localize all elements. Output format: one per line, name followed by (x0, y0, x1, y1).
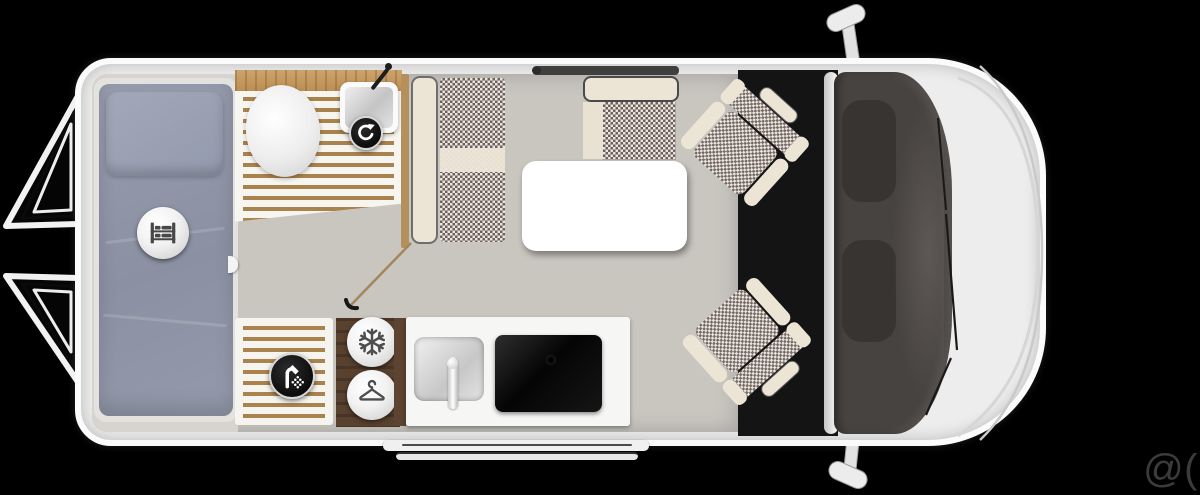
bench-backrest (411, 76, 438, 244)
furniture-wood-edge (401, 74, 409, 248)
travel-seat-bolster (583, 102, 603, 159)
bunk-bed-icon (137, 207, 189, 259)
bed-pillow (106, 92, 223, 176)
rear-door-bottom-icon (6, 276, 78, 382)
rear-door-top-icon (6, 96, 78, 226)
bathroom-faucet-knob (385, 63, 392, 70)
snowflake-icon (347, 317, 397, 367)
watermark-text: @( Bazos.cz (990, 445, 1198, 493)
sliding-door-rail (402, 444, 632, 446)
travel-seat-cushion (603, 102, 676, 160)
kitchen-wood-edge (394, 318, 406, 426)
headrest-rail (535, 66, 679, 75)
sliding-door-step-lower (396, 452, 638, 460)
bench-cushion-band (440, 148, 505, 172)
hanger-icon (347, 370, 397, 420)
shower-head-icon (269, 353, 315, 399)
rotate-arrow-icon (349, 116, 383, 150)
dinette-table (522, 161, 687, 251)
windshield (834, 72, 952, 434)
kitchen-counter (406, 317, 630, 426)
cooktop (495, 335, 602, 412)
headrest-rail-knob (532, 66, 541, 75)
cooktop-knob (546, 355, 556, 365)
travel-seat-headrest (583, 76, 679, 102)
kitchen-faucet-knob (447, 358, 458, 369)
floorplan-image: @( Bazos.cz (0, 0, 1200, 495)
